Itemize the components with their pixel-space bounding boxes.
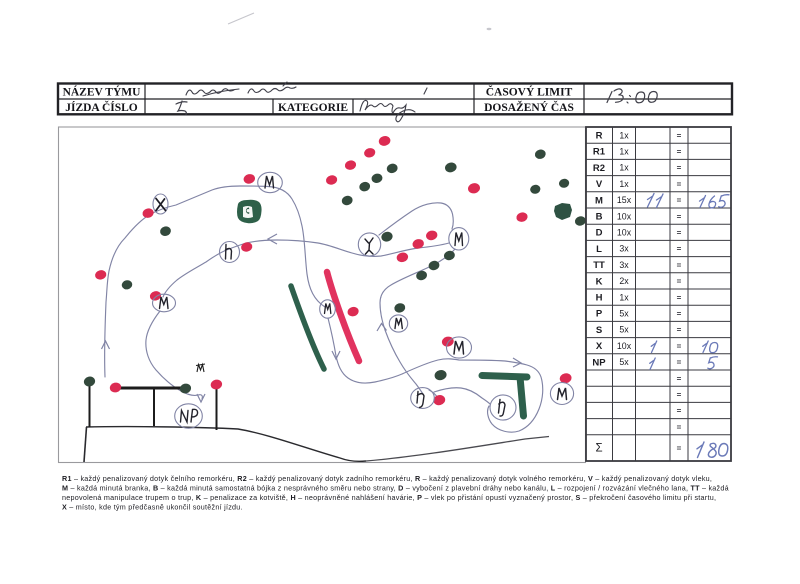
svg-text:=: =	[677, 212, 682, 221]
svg-text:=: =	[677, 391, 682, 400]
svg-text:10x: 10x	[617, 211, 632, 221]
svg-text:X: X	[596, 341, 603, 352]
svg-text:=: =	[677, 374, 682, 383]
svg-text:ČASOVÝ LIMIT: ČASOVÝ LIMIT	[486, 85, 573, 99]
svg-text:B: B	[596, 212, 603, 223]
svg-text:=: =	[677, 358, 682, 367]
svg-text:L: L	[596, 244, 602, 255]
svg-text:=: =	[677, 293, 682, 302]
svg-text:M: M	[595, 195, 603, 206]
svg-text:=: =	[677, 310, 682, 319]
svg-text:5x: 5x	[619, 325, 629, 335]
svg-text:X – místo, kde tým předčasně u: X – místo, kde tým předčasně ukončil sou…	[62, 503, 243, 512]
svg-text:NP: NP	[592, 357, 606, 368]
svg-text:nepovolená manipulace trupem o: nepovolená manipulace trupem o trup, K –…	[62, 493, 716, 502]
svg-text:D: D	[596, 228, 603, 239]
svg-text:10x: 10x	[617, 228, 632, 238]
svg-text:=: =	[677, 444, 682, 453]
svg-text:2x: 2x	[619, 276, 629, 286]
svg-text:=: =	[677, 180, 682, 189]
svg-text:1x: 1x	[619, 179, 629, 189]
svg-text:=: =	[677, 148, 682, 157]
svg-text:DOSAŽENÝ ČAS: DOSAŽENÝ ČAS	[484, 100, 574, 114]
svg-text:H: H	[596, 293, 603, 304]
svg-text:R: R	[596, 131, 603, 142]
svg-text:TT: TT	[593, 260, 605, 271]
svg-text:R2: R2	[593, 163, 605, 174]
svg-text:P: P	[596, 309, 603, 320]
svg-text:NÁZEV TÝMU: NÁZEV TÝMU	[63, 85, 142, 99]
svg-text:=: =	[677, 131, 682, 140]
svg-text:K: K	[596, 276, 603, 287]
svg-text:V: V	[596, 179, 603, 190]
svg-text:10x: 10x	[617, 341, 632, 351]
svg-text:Σ: Σ	[595, 443, 602, 455]
svg-text:15x: 15x	[617, 195, 632, 205]
svg-text:1x: 1x	[619, 292, 629, 302]
svg-text:S: S	[596, 325, 602, 336]
svg-text:=: =	[677, 342, 682, 351]
svg-text:=: =	[677, 326, 682, 335]
svg-text:=: =	[677, 196, 682, 205]
svg-text:1x: 1x	[619, 147, 629, 157]
svg-text:=: =	[677, 229, 682, 238]
svg-text:=: =	[677, 423, 682, 432]
svg-text:3x: 3x	[619, 260, 629, 270]
svg-text:R1: R1	[593, 147, 606, 158]
svg-text:=: =	[677, 277, 682, 286]
svg-text:=: =	[677, 407, 682, 416]
svg-text:1x: 1x	[619, 130, 629, 140]
svg-text:KATEGORIE: KATEGORIE	[278, 102, 348, 114]
svg-text:JÍZDA ČÍSLO: JÍZDA ČÍSLO	[65, 100, 138, 114]
svg-text:1x: 1x	[619, 163, 629, 173]
svg-text:5x: 5x	[619, 357, 629, 367]
svg-text:=: =	[677, 164, 682, 173]
svg-text:R1 – každý penalizovaný dotyk: R1 – každý penalizovaný dotyk čelního re…	[62, 474, 712, 483]
svg-text:=: =	[677, 245, 682, 254]
svg-text:M – každá minutá branka, B – k: M – každá minutá branka, B – každá minut…	[62, 484, 729, 493]
svg-text:=: =	[677, 261, 682, 270]
svg-text:5x: 5x	[619, 309, 629, 319]
svg-text:3x: 3x	[619, 244, 629, 254]
